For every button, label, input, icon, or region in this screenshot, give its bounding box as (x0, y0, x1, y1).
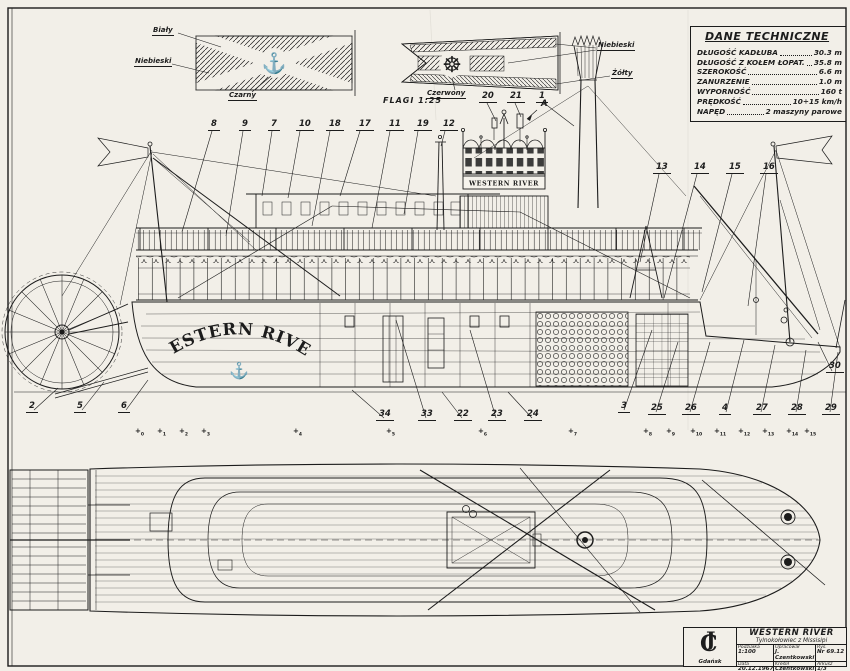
station-number: 11 (720, 432, 726, 437)
tech-label: SZEROKOŚĆ (697, 67, 746, 76)
blueprint-sheet: ⚓ ☸ (0, 0, 850, 671)
callout-number: 33 (418, 410, 436, 421)
flag-label-blue: Niebieski (134, 58, 172, 67)
station-mark: +2 (179, 428, 188, 438)
pennant-label-yellow: Żółty (611, 70, 633, 79)
flag-pennant: ☸ (402, 32, 610, 94)
draftsman-value: Czentkowski J. (775, 667, 814, 671)
technical-data-table: DANE TECHNICZNE DŁUGOŚĆ KADŁUBA30.3 m DŁ… (690, 26, 846, 122)
callout-number: 15 (726, 163, 744, 174)
draftsman-cell: Kreślił Czentkowski J. (774, 662, 816, 671)
callout-number: 29 (822, 404, 840, 415)
dotted-leader (752, 94, 818, 95)
callout-number: 25 (648, 404, 666, 415)
station-number: 4 (299, 432, 302, 437)
pennant-label-blue: Niebieski (597, 42, 635, 51)
author-value: J. Czentkowski (775, 650, 814, 661)
tech-label: WYPORNOŚĆ (697, 87, 750, 96)
drawing-subtitle: Tylnokołowiec z Missisipi (737, 638, 846, 644)
callout-number: 6 (118, 402, 130, 413)
tech-row: WYPORNOŚĆ160 t (697, 86, 842, 96)
dotted-leader (752, 84, 817, 85)
callout-number: 2 (26, 402, 38, 413)
dotted-leader (743, 104, 791, 105)
flag-label-white: Biały (152, 27, 174, 36)
tech-label: PRĘDKOŚĆ (697, 97, 741, 106)
flag-jack: ⚓ (172, 30, 355, 96)
sheet-number-cell: Arkusz 1/3 (816, 662, 846, 671)
flags-caption: FLAGI 1:25 (383, 96, 442, 105)
callout-number: 3 (618, 402, 630, 413)
station-number: 2 (185, 432, 188, 437)
callout-number: 10 (296, 120, 314, 131)
tech-value: 6.6 m (819, 67, 842, 76)
tech-label: DŁUGOŚĆ KADŁUBA (697, 48, 778, 57)
drawing-title: WESTERN RIVER (737, 629, 846, 638)
scale-value: 1:100 (738, 650, 772, 656)
station-number: 6 (484, 432, 487, 437)
tech-title: DANE TECHNICZNE (705, 30, 842, 43)
dotted-leader (727, 114, 763, 115)
tech-row: NAPĘD2 maszyny parowe (697, 106, 842, 116)
station-mark: +0 (135, 428, 144, 438)
station-mark: +1 (157, 428, 166, 438)
monogram-letter-j: J (706, 627, 715, 651)
station-number: 0 (141, 432, 144, 437)
station-number: 1 (163, 432, 166, 437)
frame-letter: A (538, 100, 551, 110)
station-number: 14 (792, 432, 798, 437)
station-mark: +12 (738, 428, 750, 438)
plan-view (10, 464, 825, 616)
callout-number: 23 (488, 410, 506, 421)
callout-number: 30 (826, 362, 844, 373)
station-mark: +8 (643, 428, 652, 438)
callout-number: 9 (239, 120, 251, 131)
dotted-leader (780, 55, 812, 56)
tech-row: ZANURZENIE1.0 m (697, 76, 842, 86)
callout-number: 28 (788, 404, 806, 415)
drawing-number-cell: Rys. Nr 69.12 (816, 645, 846, 662)
ship-wheel-icon: ☸ (442, 53, 462, 78)
tech-label: NAPĘD (697, 107, 725, 116)
station-mark: +14 (786, 428, 798, 438)
callout-number: 24 (524, 410, 542, 421)
callout-number: 27 (753, 404, 771, 415)
station-number: 12 (744, 432, 750, 437)
station-number: 13 (768, 432, 774, 437)
station-mark: +3 (201, 428, 210, 438)
callout-number: 12 (440, 120, 458, 131)
sheet-number-value: 1/3 (817, 667, 845, 671)
tech-value: 2 maszyny parowe (766, 107, 842, 116)
publisher-monogram: C J (698, 629, 724, 655)
date-value: 20.12.1967 (738, 667, 772, 671)
station-mark: +13 (762, 428, 774, 438)
station-number: 5 (392, 432, 395, 437)
drawing-number-value: Nr 69.12 (817, 650, 845, 656)
station-number: 15 (810, 432, 816, 437)
title-block-header: WESTERN RIVER Tylnokołowiec z Missisipi (737, 628, 846, 645)
station-mark: +15 (804, 428, 816, 438)
flag-label-black: Czarny (228, 92, 257, 101)
publisher-city: Gdańsk (684, 659, 736, 665)
tech-value: 30.3 m (814, 48, 842, 57)
callout-number: 16 (760, 163, 778, 174)
callout-number: 5 (74, 402, 86, 413)
hull-anchor-icon: ⚓ (229, 361, 249, 380)
callout-number: 18 (326, 120, 344, 131)
callout-number: 19 (414, 120, 432, 131)
callout-number: 17 (356, 120, 374, 131)
station-mark: +9 (666, 428, 675, 438)
dotted-leader (807, 65, 812, 66)
callout-number: 26 (682, 404, 700, 415)
tech-value: 10÷15 km/h (793, 97, 842, 106)
callout-number: 22 (454, 410, 472, 421)
pilothouse-sign-text: WESTERN RIVER (468, 181, 539, 188)
title-block: C J Gdańsk WESTERN RIVER Tylnokołowiec z… (683, 627, 847, 667)
title-block-grid: Podziałka 1:100 Opracował J. Czentkowski… (737, 645, 846, 671)
callout-number: 14 (691, 163, 709, 174)
callout-number: 20 (479, 92, 497, 103)
tech-row: DŁUGOŚĆ KADŁUBA30.3 m (697, 47, 842, 57)
tech-value: 35.8 m (814, 58, 842, 67)
callout-number: 11 (386, 120, 404, 131)
callout-number: 7 (268, 120, 280, 131)
callout-number: 21 (507, 92, 525, 103)
tech-row: SZEROKOŚĆ6.6 m (697, 67, 842, 77)
station-mark: +11 (714, 428, 726, 438)
title-block-main: WESTERN RIVER Tylnokołowiec z Missisipi … (737, 628, 846, 666)
station-mark: +10 (690, 428, 702, 438)
callout-number: 8 (208, 120, 220, 131)
station-number: 8 (649, 432, 652, 437)
station-mark: +4 (293, 428, 302, 438)
station-number: 7 (574, 432, 577, 437)
tech-row: DŁUGOŚĆ Z KOŁEM ŁOPAT.35.8 m (697, 57, 842, 67)
dotted-leader (748, 74, 817, 75)
callout-number: 13 (653, 163, 671, 174)
station-mark: +5 (386, 428, 395, 438)
tech-value: 160 t (821, 87, 842, 96)
station-number: 3 (207, 432, 210, 437)
callout-number: 4 (719, 404, 731, 415)
author-cell: Opracował J. Czentkowski (774, 645, 816, 662)
tech-label: DŁUGOŚĆ Z KOŁEM ŁOPAT. (697, 58, 805, 67)
anchor-icon: ⚓ (262, 51, 287, 75)
station-number: 9 (672, 432, 675, 437)
station-mark: +7 (568, 428, 577, 438)
station-number: 10 (696, 432, 702, 437)
tech-value: 1.0 m (819, 77, 842, 86)
title-block-logo: C J Gdańsk (684, 628, 737, 666)
station-mark: +6 (478, 428, 487, 438)
tech-label: ZANURZENIE (697, 77, 750, 86)
callout-number: 34 (376, 410, 394, 421)
scale-cell: Podziałka 1:100 (737, 645, 774, 662)
date-cell: Data 20.12.1967 (737, 662, 774, 671)
tech-row: PRĘDKOŚĆ10÷15 km/h (697, 96, 842, 106)
